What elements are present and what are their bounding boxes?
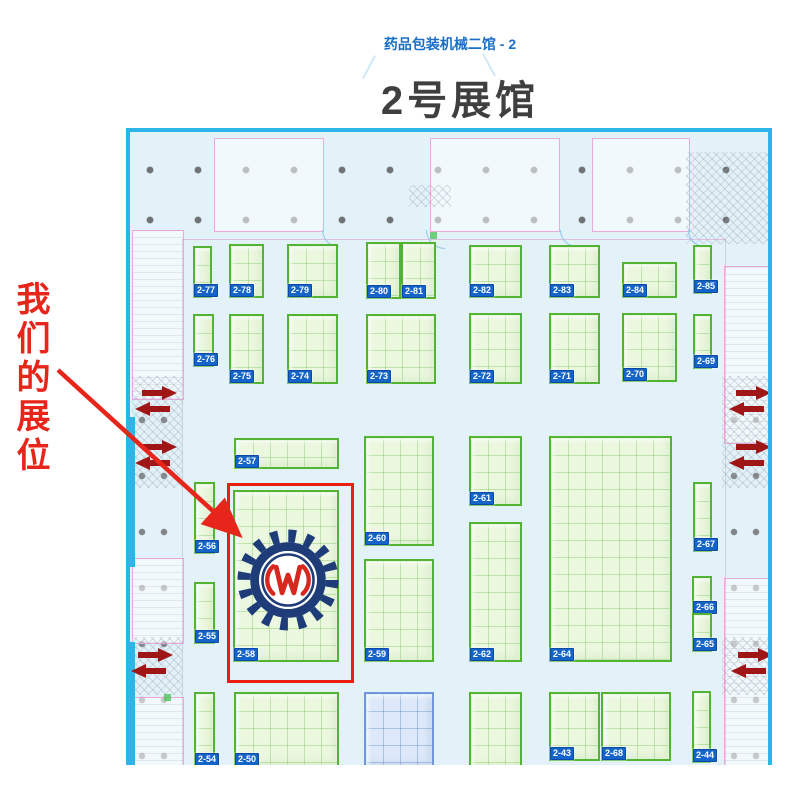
booth-2-77: 2-77 bbox=[193, 246, 212, 298]
booth-2-72: 2-72 bbox=[469, 313, 522, 384]
booth-2-67: 2-67 bbox=[693, 482, 712, 552]
booth-2-78: 2-78 bbox=[229, 244, 264, 298]
booth-2-82: 2-82 bbox=[469, 245, 522, 298]
booth-label: 2-69 bbox=[694, 355, 718, 368]
booth-2-62: 2-62 bbox=[469, 522, 522, 662]
booth-label: 2-81 bbox=[402, 285, 426, 298]
booth-label: 2-71 bbox=[550, 370, 574, 383]
booth-label: 2-61 bbox=[470, 492, 494, 505]
booth-2-50: 2-50 bbox=[234, 692, 339, 765]
our-booth-arrow bbox=[44, 356, 254, 551]
booth-label: 2-74 bbox=[288, 370, 312, 383]
booth-2-81: 2-81 bbox=[401, 242, 436, 299]
booth-2-68: 2-68 bbox=[601, 692, 671, 761]
booth-label: 2-60 bbox=[365, 532, 389, 545]
booth-unlabeled bbox=[364, 692, 434, 765]
booth-2-60: 2-60 bbox=[364, 436, 434, 546]
exit-arrows-icon bbox=[728, 384, 772, 418]
booth-2-65: 2-65 bbox=[692, 613, 712, 652]
booth-2-74: 2-74 bbox=[287, 314, 338, 384]
booth-2-70: 2-70 bbox=[622, 313, 677, 382]
booth-2-55: 2-55 bbox=[194, 582, 215, 644]
page-title: 2号展馆 bbox=[120, 68, 800, 126]
booth-label: 2-70 bbox=[623, 368, 647, 381]
booth-label: 2-73 bbox=[367, 370, 391, 383]
booth-label: 2-79 bbox=[288, 284, 312, 297]
hall-link[interactable]: 药品包装机械二馆 - 2 bbox=[120, 34, 780, 54]
booth-label: 2-44 bbox=[693, 749, 717, 762]
booth-label: 2-72 bbox=[470, 370, 494, 383]
booth-2-64: 2-64 bbox=[549, 436, 672, 662]
booth-label: 2-65 bbox=[693, 638, 717, 651]
booth-2-69: 2-69 bbox=[693, 314, 712, 369]
booth-label: 2-55 bbox=[195, 630, 219, 643]
booth-2-71: 2-71 bbox=[549, 313, 600, 384]
booth-label: 2-62 bbox=[470, 648, 494, 661]
booth-2-80: 2-80 bbox=[366, 242, 401, 299]
booth-2-59: 2-59 bbox=[364, 559, 434, 662]
booth-label: 2-78 bbox=[230, 284, 254, 297]
booth-2-79: 2-79 bbox=[287, 244, 338, 298]
booth-2-83: 2-83 bbox=[549, 245, 600, 298]
exit-arrows-icon bbox=[130, 646, 174, 680]
booth-label: 2-85 bbox=[694, 280, 718, 293]
booth-label: 2-54 bbox=[195, 753, 219, 765]
booth-label: 2-50 bbox=[235, 753, 259, 765]
booth-label: 2-83 bbox=[550, 284, 574, 297]
booth-label: 2-68 bbox=[602, 747, 626, 760]
booth-2-66: 2-66 bbox=[692, 576, 712, 615]
booth-label: 2-77 bbox=[194, 284, 218, 297]
booth-2-61: 2-61 bbox=[469, 436, 522, 506]
booth-2-84: 2-84 bbox=[622, 262, 677, 298]
booth-label: 2-80 bbox=[367, 285, 391, 298]
booth-label: 2-43 bbox=[550, 747, 574, 760]
exit-arrows-icon bbox=[728, 438, 772, 472]
booth-2-85: 2-85 bbox=[693, 245, 712, 294]
booth-2-54: 2-54 bbox=[194, 692, 215, 765]
booth-2-73: 2-73 bbox=[366, 314, 436, 384]
booth-unlabeled bbox=[469, 692, 522, 765]
exit-arrows-icon bbox=[730, 646, 772, 680]
booth-label: 2-59 bbox=[365, 648, 389, 661]
booth-label: 2-82 bbox=[470, 284, 494, 297]
booth-label: 2-84 bbox=[623, 284, 647, 297]
booth-label: 2-67 bbox=[694, 538, 718, 551]
booth-2-43: 2-43 bbox=[549, 692, 600, 761]
booth-2-44: 2-44 bbox=[692, 691, 711, 763]
booth-label: 2-64 bbox=[550, 648, 574, 661]
